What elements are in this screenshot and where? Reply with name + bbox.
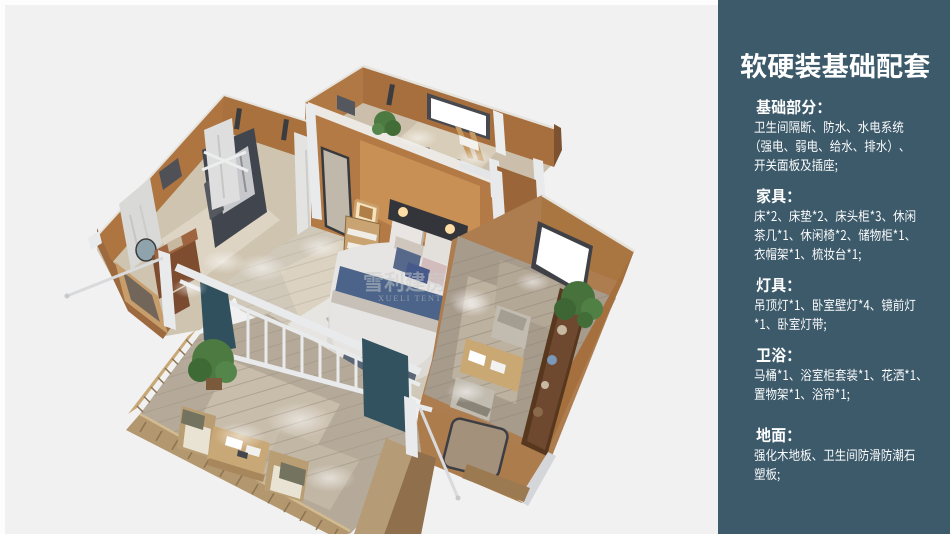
- svg-text:XUELI TENT: XUELI TENT: [378, 293, 442, 303]
